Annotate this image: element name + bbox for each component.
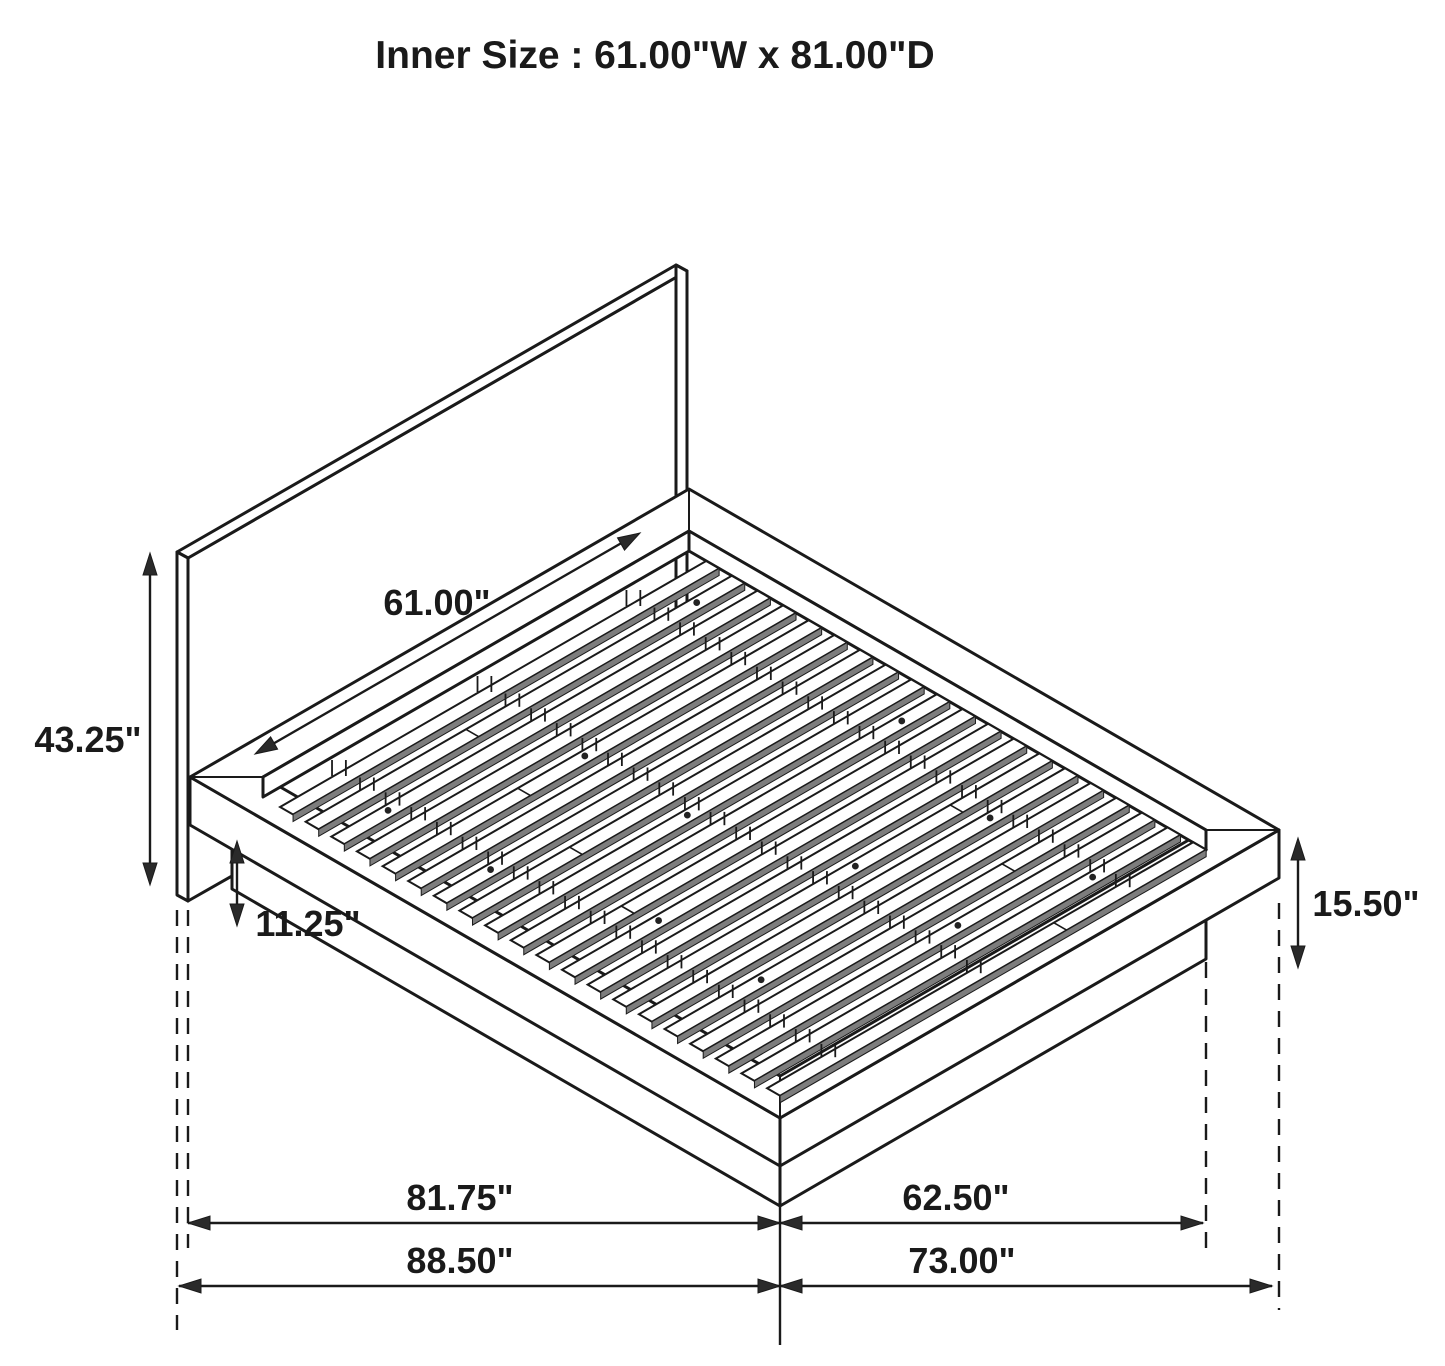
screw-dot [655,917,662,924]
headboard-height-label: 43.25" [34,719,141,760]
overall-width-label: 73.00" [908,1240,1015,1281]
platform-width-label: 62.50" [902,1177,1009,1218]
diagram-title: Inner Size : 61.00"W x 81.00"D [375,34,934,77]
screw-dot [954,922,961,929]
screw-dot [987,815,994,822]
dim-line-1: 81.75" 62.50" [188,1177,1203,1230]
screw-dot [1089,874,1096,881]
bed-dimension-diagram: 61.00" 43.25" 11.25" 15.50" [0,0,1445,1366]
screw-dot [852,863,859,870]
platform-height-label: 15.50" [1312,883,1419,924]
dim-platform-height: 15.50" [1291,838,1420,968]
screw-dot [758,976,765,983]
base-clearance-label: 11.25" [255,903,360,944]
screw-dot [693,599,700,606]
screw-dot [385,807,392,814]
headboard-left-edge [177,552,188,901]
overall-length-label: 88.50" [406,1240,513,1281]
dim-line-2: 88.50" 73.00" [179,1240,1272,1293]
inner-width-label: 61.00" [383,582,490,623]
platform-length-label: 81.75" [406,1177,513,1218]
screw-dot [684,812,691,819]
headboard-right-edge [676,265,687,617]
screw-dot [898,718,905,725]
diagram-canvas: 61.00" 43.25" 11.25" 15.50" [0,0,1445,1366]
screw-dot [581,753,588,760]
dim-headboard-height: 43.25" [34,553,157,885]
screw-dot [487,866,494,873]
